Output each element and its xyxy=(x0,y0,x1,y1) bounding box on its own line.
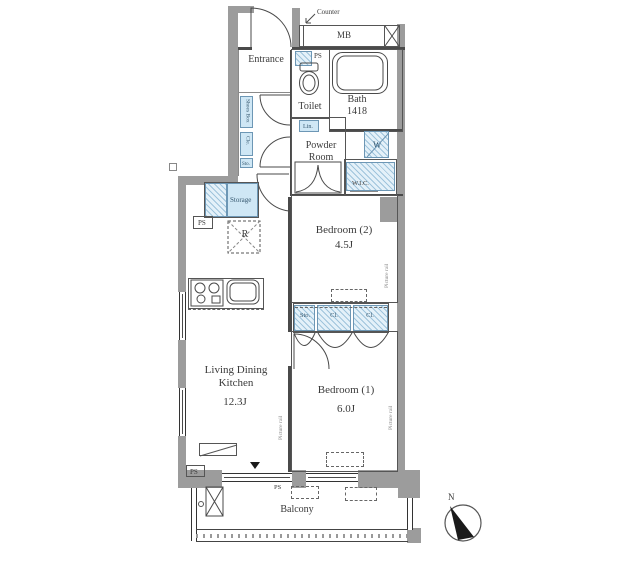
bedroom1-size-label: 6.0J xyxy=(337,404,355,415)
bathtub-icon xyxy=(331,51,389,95)
ldk-label-line1: Living Dining xyxy=(205,365,268,376)
washer-slash-icon xyxy=(365,132,390,159)
stove-icon xyxy=(190,279,224,307)
ac-unit-dashed-bedroom1 xyxy=(326,452,364,467)
hall-closet: Cle. xyxy=(240,132,253,156)
bedroom2-label: Bedroom (2) xyxy=(316,225,373,236)
window-center-line xyxy=(182,294,183,338)
linen-label: Lin. xyxy=(303,124,313,130)
picture-rail-label-bedroom2: Picture rail xyxy=(385,240,391,288)
ldk-low-counter xyxy=(199,443,237,456)
hall-to-ldk-door-arc xyxy=(254,171,292,213)
storage-box: Storage xyxy=(227,183,258,217)
toilet-icon xyxy=(296,61,322,97)
washer-box: W xyxy=(364,131,389,158)
wall xyxy=(398,470,420,498)
ldk-label-line2: Kitchen xyxy=(219,378,254,389)
north-needle-icon xyxy=(450,506,474,540)
ldk-size-label: 12.3J xyxy=(223,397,247,408)
ps-label-balcony: PS xyxy=(274,485,281,492)
bedroom2-size-label: 4.5J xyxy=(335,240,353,251)
hall-storage-small: Sto. xyxy=(240,158,253,168)
vanity-sink-icon xyxy=(294,161,342,195)
counter-label: Counter xyxy=(317,9,340,16)
bath-label: Bath xyxy=(348,95,367,105)
entrance-door-arc xyxy=(248,5,294,51)
shoes-box: Shoes Box xyxy=(240,96,253,128)
closet-pipe-dashed xyxy=(295,307,387,309)
ps-label-left: PS xyxy=(198,220,206,227)
section-marker-icon xyxy=(250,462,260,469)
bedroom1-door-arc xyxy=(291,331,331,371)
floor-plan: MB Counter Entrance Shoes Box Cle. Sto. … xyxy=(0,0,640,569)
wall-line xyxy=(238,50,239,176)
balcony-side-wall xyxy=(407,498,413,530)
shaft-x-icon xyxy=(384,25,400,47)
wall xyxy=(178,436,186,472)
hall-storage-small-label: Sto. xyxy=(242,162,250,167)
refrigerator-label: R xyxy=(242,230,249,240)
wall xyxy=(407,528,421,543)
counter-arrow-icon xyxy=(303,12,317,26)
wall xyxy=(228,8,238,184)
storage-hatch xyxy=(205,183,227,217)
window-center-line xyxy=(182,390,183,434)
bedroom1-label: Bedroom (1) xyxy=(318,385,375,396)
kitchen-sink-icon xyxy=(226,279,260,305)
drain-marker xyxy=(198,501,204,507)
hall-door-arcs xyxy=(258,93,292,169)
wic-label: W.I.C. xyxy=(352,181,369,188)
storage-label: Storage xyxy=(230,197,251,204)
shoes-box-label: Shoes Box xyxy=(244,99,250,123)
bath-size-label: 1418 xyxy=(347,107,367,117)
ps-box-left: PS xyxy=(193,216,213,229)
closet-shelf-dashed xyxy=(331,289,367,302)
counter-edge-dashed xyxy=(188,309,264,311)
wall-end-cap xyxy=(169,163,177,171)
ac-outdoor-unit-dashed xyxy=(291,486,319,499)
window-center-line xyxy=(224,477,290,478)
toilet-label: Toilet xyxy=(298,102,321,112)
ac-outdoor-unit-dashed xyxy=(345,487,377,501)
wall xyxy=(178,340,186,388)
ps-label-top: PS xyxy=(314,53,322,60)
closet-sto-label: Sto. xyxy=(300,313,310,320)
mb-label: MB xyxy=(337,31,351,40)
powder-room-label-line1: Powder xyxy=(306,141,337,151)
closet-cl1-label: Cl. xyxy=(330,313,338,320)
ps-box-bottom-left: PS xyxy=(186,465,205,477)
entrance-label: Entrance xyxy=(248,55,284,65)
linen-box: Lin. xyxy=(299,120,319,132)
wall xyxy=(178,184,186,292)
closet-cl2-label: Cl. xyxy=(366,313,374,320)
ps-label-bottom-left: PS xyxy=(190,469,198,476)
north-label: N xyxy=(448,493,455,502)
balcony-label: Balcony xyxy=(280,505,313,515)
balcony-railing xyxy=(196,529,408,542)
picture-rail-label-bedroom1: Picture rail xyxy=(389,382,395,430)
picture-rail-label-ldk: Picture rail xyxy=(279,392,285,440)
evacuation-hatch-icon xyxy=(205,486,224,517)
compass xyxy=(438,489,488,547)
window-center-line xyxy=(308,477,356,478)
hall-closet-label: Cle. xyxy=(244,136,250,145)
ldk-low-counter-diagonal xyxy=(200,444,238,457)
